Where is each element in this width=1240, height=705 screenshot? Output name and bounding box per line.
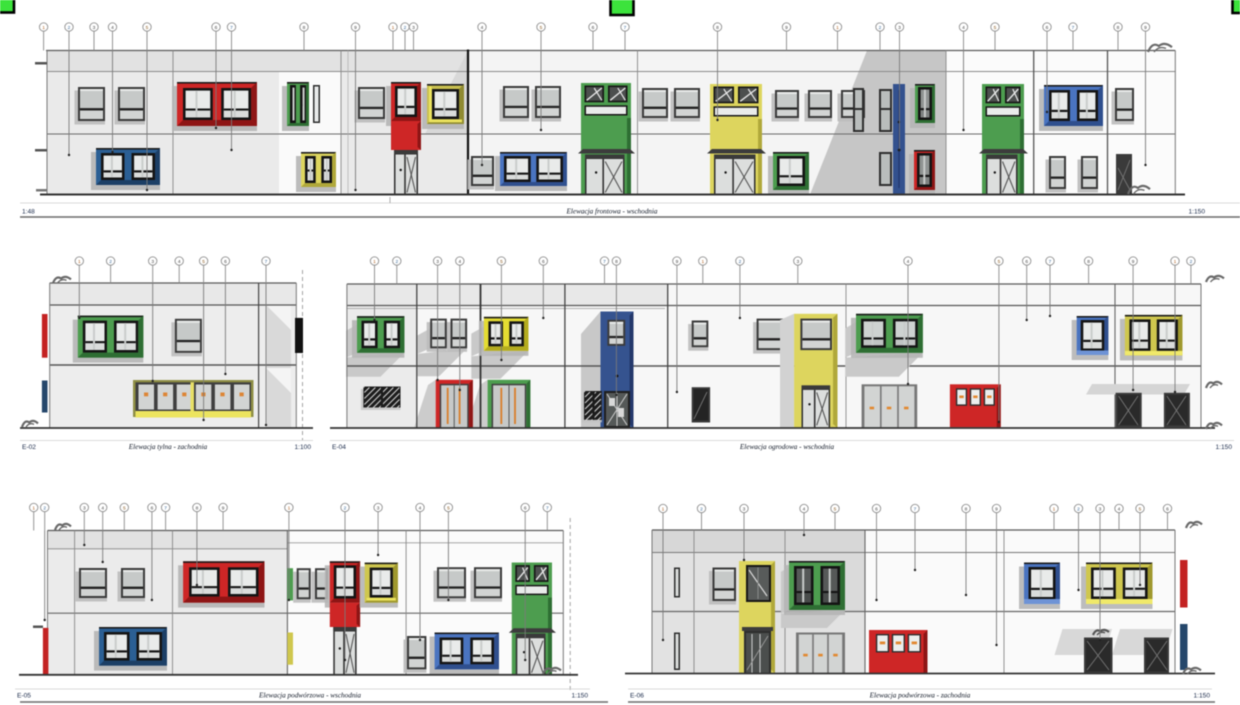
svg-text:5: 5 — [500, 259, 503, 265]
svg-text:E-04: E-04 — [332, 444, 346, 451]
svg-text:5: 5 — [1139, 506, 1142, 512]
svg-text:5: 5 — [146, 25, 149, 31]
svg-text:3: 3 — [412, 25, 415, 31]
svg-text:4: 4 — [962, 25, 965, 31]
svg-text:3: 3 — [898, 25, 901, 31]
svg-text:Elewacja podwórzowa - wschodni: Elewacja podwórzowa - wschodnia — [258, 692, 361, 700]
svg-text:5: 5 — [998, 259, 1001, 265]
svg-text:1:150: 1:150 — [1188, 209, 1205, 216]
svg-text:4: 4 — [481, 25, 484, 31]
svg-text:2: 2 — [68, 25, 71, 31]
svg-text:6: 6 — [524, 505, 527, 511]
svg-text:6: 6 — [1025, 259, 1028, 265]
svg-text:5: 5 — [994, 25, 997, 31]
svg-text:6: 6 — [224, 259, 227, 265]
svg-text:8: 8 — [1087, 259, 1090, 265]
svg-text:3: 3 — [83, 505, 86, 511]
svg-text:8: 8 — [965, 506, 968, 512]
svg-text:4: 4 — [101, 505, 104, 511]
svg-text:9: 9 — [785, 25, 788, 31]
svg-text:2: 2 — [395, 259, 398, 265]
svg-text:1: 1 — [1174, 259, 1177, 265]
svg-text:4: 4 — [419, 505, 422, 511]
svg-text:9: 9 — [676, 259, 679, 265]
svg-text:8: 8 — [303, 25, 306, 31]
svg-text:9: 9 — [995, 506, 998, 512]
svg-text:3: 3 — [436, 259, 439, 265]
svg-text:1:150: 1:150 — [1215, 444, 1232, 451]
svg-text:1:150: 1:150 — [571, 693, 588, 700]
svg-text:3: 3 — [1099, 506, 1102, 512]
svg-text:9: 9 — [222, 505, 225, 511]
svg-text:3: 3 — [377, 505, 380, 511]
svg-text:5: 5 — [447, 505, 450, 511]
svg-text:7: 7 — [624, 25, 627, 31]
svg-text:7: 7 — [914, 506, 917, 512]
svg-text:1: 1 — [288, 505, 291, 511]
svg-text:1: 1 — [373, 259, 376, 265]
svg-text:6: 6 — [542, 259, 545, 265]
svg-text:6: 6 — [1166, 506, 1169, 512]
svg-text:1: 1 — [42, 25, 45, 31]
svg-text:7: 7 — [546, 505, 549, 511]
svg-text:4: 4 — [907, 259, 910, 265]
svg-text:7: 7 — [1049, 259, 1052, 265]
svg-text:2: 2 — [739, 259, 742, 265]
svg-text:1: 1 — [836, 25, 839, 31]
svg-text:7: 7 — [603, 259, 606, 265]
svg-text:1: 1 — [392, 25, 395, 31]
svg-text:1:100: 1:100 — [294, 444, 311, 451]
svg-text:4: 4 — [458, 259, 461, 265]
svg-text:1:150: 1:150 — [1193, 693, 1210, 700]
svg-text:2: 2 — [1190, 259, 1193, 265]
svg-text:5: 5 — [202, 259, 205, 265]
svg-text:5: 5 — [834, 506, 837, 512]
svg-text:9: 9 — [1144, 25, 1147, 31]
svg-text:7: 7 — [1072, 25, 1075, 31]
svg-text:6: 6 — [1046, 25, 1049, 31]
svg-text:9: 9 — [1132, 259, 1135, 265]
svg-text:7: 7 — [265, 259, 268, 265]
svg-text:4: 4 — [803, 506, 806, 512]
svg-text:E-05: E-05 — [17, 693, 31, 700]
svg-text:3: 3 — [93, 25, 96, 31]
svg-text:1: 1 — [1053, 506, 1056, 512]
svg-text:1: 1 — [32, 505, 35, 511]
svg-text:8: 8 — [196, 505, 199, 511]
svg-text:3: 3 — [796, 259, 799, 265]
svg-text:1: 1 — [662, 506, 665, 512]
svg-text:5: 5 — [123, 505, 126, 511]
svg-text:2: 2 — [879, 25, 882, 31]
svg-text:Elewacja tylna - zachodnia: Elewacja tylna - zachodnia — [128, 443, 208, 451]
svg-text:9: 9 — [354, 25, 357, 31]
svg-text:3: 3 — [743, 506, 746, 512]
svg-text:2: 2 — [700, 506, 703, 512]
svg-text:2: 2 — [1077, 506, 1080, 512]
svg-text:Elewacja frontowa - wschodnia: Elewacja frontowa - wschodnia — [566, 208, 658, 216]
svg-text:6: 6 — [592, 25, 595, 31]
svg-text:1:48: 1:48 — [22, 209, 35, 216]
svg-text:6: 6 — [875, 506, 878, 512]
svg-text:Elewacja ogrodowa - wschodnia: Elewacja ogrodowa - wschodnia — [739, 443, 835, 451]
svg-text:4: 4 — [178, 259, 181, 265]
svg-text:5: 5 — [540, 25, 543, 31]
svg-text:Elewacja podwórzowa - zachodni: Elewacja podwórzowa - zachodnia — [869, 692, 971, 700]
svg-text:6: 6 — [151, 505, 154, 511]
svg-text:2: 2 — [344, 505, 347, 511]
svg-text:8: 8 — [716, 25, 719, 31]
svg-text:2: 2 — [43, 505, 46, 511]
svg-text:E-06: E-06 — [630, 693, 644, 700]
svg-text:4: 4 — [111, 25, 114, 31]
svg-text:7: 7 — [230, 25, 233, 31]
svg-text:3: 3 — [151, 259, 154, 265]
svg-text:8: 8 — [1117, 25, 1120, 31]
svg-text:2: 2 — [404, 25, 407, 31]
svg-text:7: 7 — [164, 505, 167, 511]
svg-text:8: 8 — [615, 259, 618, 265]
svg-text:1: 1 — [701, 259, 704, 265]
svg-text:2: 2 — [109, 259, 112, 265]
svg-text:4: 4 — [1118, 506, 1121, 512]
svg-text:1: 1 — [78, 259, 81, 265]
svg-text:6: 6 — [215, 25, 218, 31]
svg-text:E-02: E-02 — [22, 444, 36, 451]
